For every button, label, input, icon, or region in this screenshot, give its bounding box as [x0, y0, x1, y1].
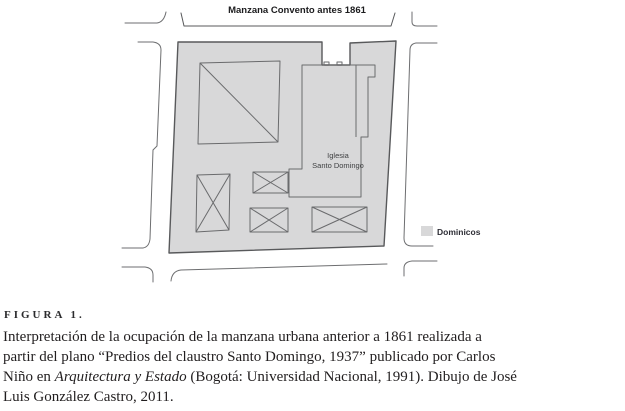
caption-line-3: Niño en Arquitectura y Estado (Bogotá: U…	[3, 367, 623, 387]
street-top-right-corner	[412, 12, 437, 26]
caption-line-2: partir del plano “Predios del claustro S…	[3, 347, 623, 367]
street-right-curb	[404, 43, 437, 246]
street-right-lower-corner	[404, 261, 437, 276]
street-left-curb	[122, 42, 161, 248]
figure-caption: Interpretación de la ocupación de la man…	[3, 327, 623, 407]
caption-line-3-pre: Niño en	[3, 369, 55, 385]
figure-label: FIGURA 1.	[4, 309, 85, 321]
map-title: Manzana Convento antes 1861	[228, 5, 367, 16]
legend-swatch	[421, 226, 433, 236]
street-top-left	[125, 12, 166, 23]
church-label-line2: Santo Domingo	[312, 161, 364, 170]
map-figure: Manzana Convento antes 1861 Iglesia Sant…	[0, 0, 625, 298]
street-bottom	[171, 264, 387, 281]
book-title: Arquitectura y Estado	[55, 369, 187, 385]
caption-line-1: Interpretación de la ocupación de la man…	[3, 327, 623, 347]
legend-label: Dominicos	[437, 227, 481, 237]
church-label-line1: Iglesia	[327, 151, 350, 160]
caption-line-4: Luis González Castro, 2011.	[3, 387, 623, 407]
street-left-lower-corner	[122, 267, 153, 282]
caption-line-3-post: (Bogotá: Universidad Nacional, 1991). Di…	[187, 369, 517, 385]
block-shape	[169, 41, 396, 253]
document-page: Manzana Convento antes 1861 Iglesia Sant…	[0, 0, 625, 411]
